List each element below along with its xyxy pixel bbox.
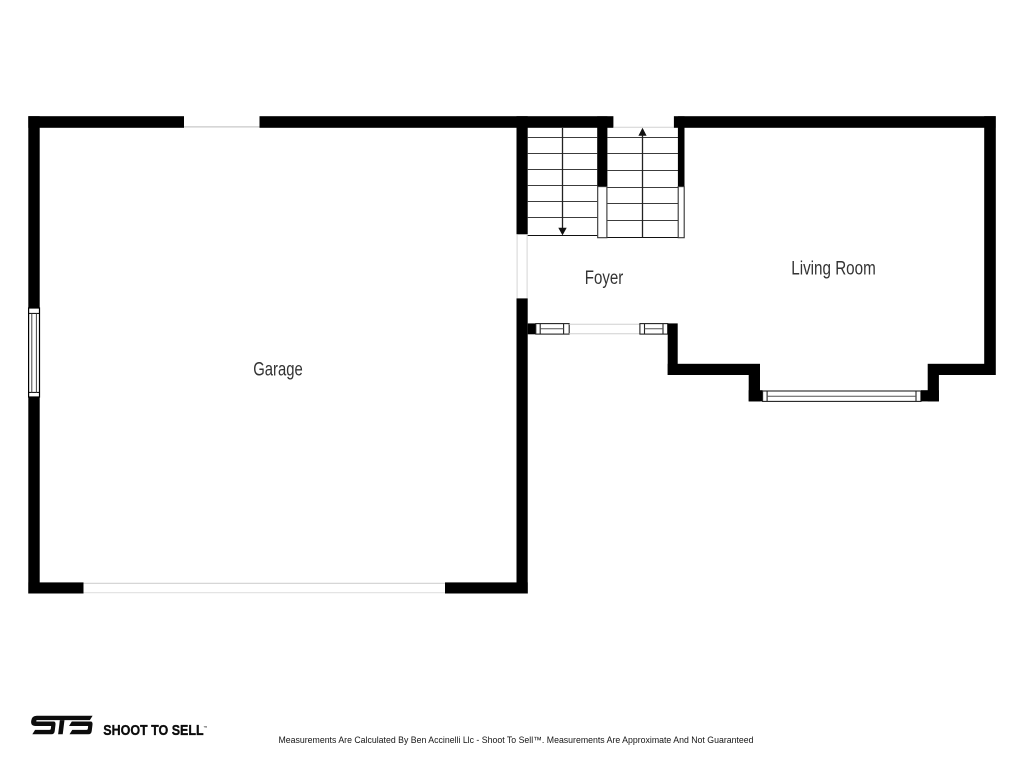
svg-text:™: ™: [204, 725, 208, 730]
svg-text:Garage: Garage: [253, 359, 303, 380]
svg-text:SHOOT TO SELL: SHOOT TO SELL: [103, 722, 203, 739]
svg-text:Foyer: Foyer: [585, 268, 624, 289]
svg-text:Measurements Are Calculated By: Measurements Are Calculated By Ben Accin…: [279, 735, 754, 745]
svg-text:Living Room: Living Room: [791, 259, 876, 280]
